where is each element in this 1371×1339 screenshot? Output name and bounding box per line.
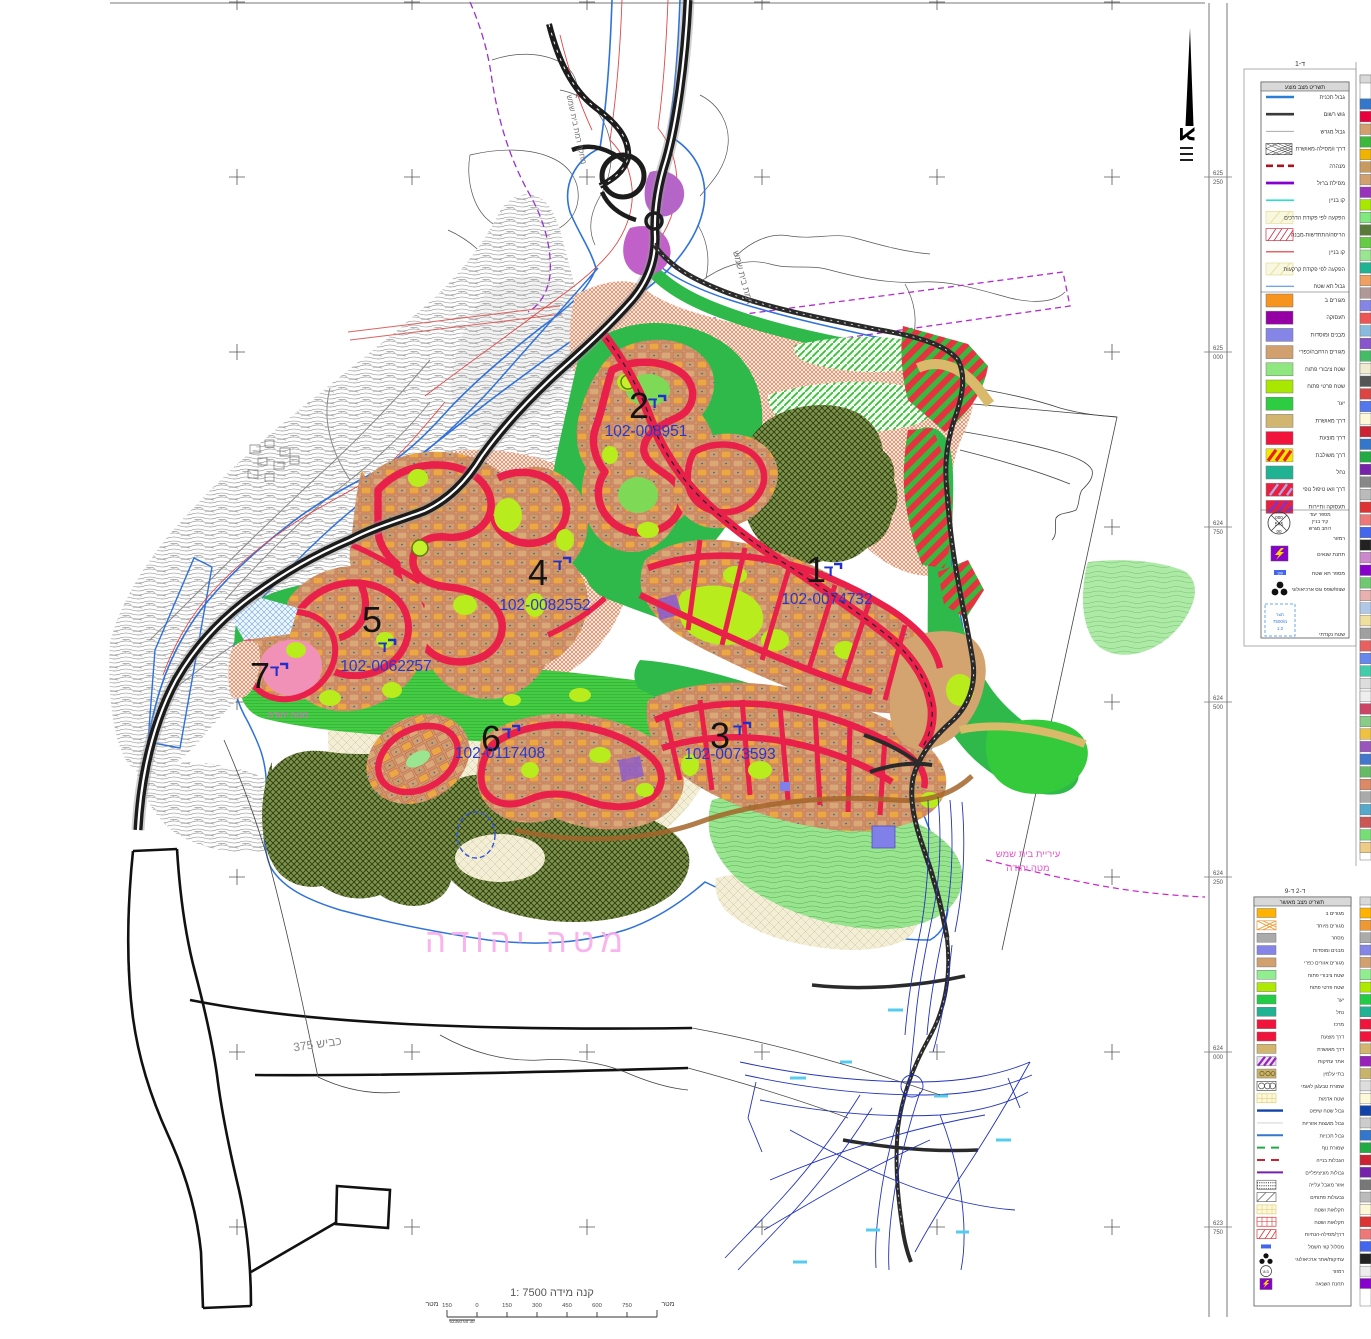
svg-text:מספר יעוד: מספר יעוד xyxy=(1309,513,1330,518)
svg-text:מספר תא שטח: מספר תא שטח xyxy=(1312,571,1346,577)
svg-text:150: 150 xyxy=(502,1303,512,1309)
svg-text:4: 4 xyxy=(528,552,548,593)
svg-text:קו בניין: קו בניין xyxy=(1329,198,1345,204)
svg-text:גבול מועצות אזוריות: גבול מועצות אזוריות xyxy=(1302,1120,1344,1127)
svg-text:קו בניין: קו בניין xyxy=(1329,250,1345,256)
svg-text:דרך מאושרת: דרך מאושרת xyxy=(1317,1047,1344,1053)
svg-text:מטה יהודה: מטה יהודה xyxy=(1006,863,1049,874)
svg-text:תחנת שנאים: תחנת שנאים xyxy=(1317,552,1345,558)
svg-text:דרך מאושרת: דרך מאושרת xyxy=(1315,418,1345,424)
svg-text:102-0074732: 102-0074732 xyxy=(781,591,872,608)
svg-text:750: 750 xyxy=(622,1303,632,1309)
svg-text:מגורים ב: מגורים ב xyxy=(1325,298,1346,304)
svg-text:יער: יער xyxy=(1337,401,1345,407)
svg-text:450: 450 xyxy=(562,1303,572,1309)
svg-text:בתי עלמין: בתי עלמין xyxy=(1323,1071,1344,1078)
svg-text:תשריט מצב מאושר: תשריט מצב מאושר xyxy=(1280,900,1325,906)
svg-text:ד-1: ד-1 xyxy=(1295,61,1305,68)
svg-text:מגורים מיוחד: מגורים מיוחד xyxy=(1316,923,1344,929)
svg-text:000: 000 xyxy=(1213,355,1224,361)
svg-text:שטח ציבורי פתוח: שטח ציבורי פתוח xyxy=(1305,367,1345,373)
svg-text:דרך מוצעת: דרך מוצעת xyxy=(1320,436,1346,442)
svg-text:7: 7 xyxy=(250,655,270,696)
svg-text:תחנת השנאה: תחנת השנאה xyxy=(1315,1282,1344,1288)
svg-text:מגורים הרחבה/כפרי: מגורים הרחבה/כפרי xyxy=(1299,350,1345,356)
svg-text:קיר בניין: קיר בניין xyxy=(1312,520,1329,525)
svg-text:2: 2 xyxy=(629,385,649,426)
svg-text:ד: ד xyxy=(553,557,562,574)
svg-text:250: 250 xyxy=(1213,180,1224,186)
svg-text:חקלאות ושטח: חקלאות ושטח xyxy=(1314,1219,1344,1226)
svg-text:625: 625 xyxy=(1213,171,1224,177)
svg-text:102-0117408: 102-0117408 xyxy=(455,745,545,762)
svg-text:שצפ/שפפ וגס ארכיאולוגי: שצפ/שפפ וגס ארכיאולוגי xyxy=(1292,586,1346,593)
svg-text:מרכז: מרכז xyxy=(1334,1022,1345,1028)
svg-text:הגבלות בנייה: הגבלות בנייה xyxy=(1316,1157,1344,1164)
svg-text:נחל: נחל xyxy=(1336,469,1345,476)
svg-text:תעסוקה: תעסוקה xyxy=(1326,315,1345,321)
svg-text:חקלאות ושטח: חקלאות ושטח xyxy=(1314,1206,1344,1213)
svg-text:מגורים אזורים כפרי: מגורים אזורים כפרי xyxy=(1304,960,1344,966)
svg-text:625: 625 xyxy=(1213,346,1224,352)
svg-text:102-008951: 102-008951 xyxy=(605,423,688,440)
svg-text:102-0082552: 102-0082552 xyxy=(499,597,590,614)
svg-text:הפקעה לפי פקודת הדרכים: הפקעה לפי פקודת הדרכים xyxy=(1284,214,1345,221)
svg-text:ד: ד xyxy=(270,663,279,680)
svg-text:מטה יהודה: מטה יהודה xyxy=(268,710,309,720)
svg-text:מסילת ברזל: מסילת ברזל xyxy=(1317,180,1345,187)
svg-text:102-0062257: 102-0062257 xyxy=(340,658,431,675)
svg-text:מטר: מטר xyxy=(661,1301,674,1308)
svg-text:623: 623 xyxy=(1213,1221,1224,1227)
svg-text:דרך ו/מסילה-מאושרת: דרך ו/מסילה-מאושרת xyxy=(1296,146,1345,153)
svg-text:102-0073593: 102-0073593 xyxy=(684,746,775,763)
svg-text:250: 250 xyxy=(1213,880,1224,886)
svg-text:624: 624 xyxy=(1213,871,1224,877)
svg-text:750: 750 xyxy=(1213,1230,1224,1236)
svg-text:600: 600 xyxy=(592,1303,602,1309)
svg-text:צ: צ xyxy=(1174,127,1201,142)
svg-text:גבול תכנית: גבול תכנית xyxy=(1320,94,1346,101)
svg-text:אזור מוגבל עלייה: אזור מוגבל עלייה xyxy=(1309,1182,1345,1189)
svg-text:624: 624 xyxy=(1213,696,1224,702)
svg-text:000: 000 xyxy=(1275,515,1283,520)
svg-text:עתיקות/אתר ארכיאולוגי: עתיקות/אתר ארכיאולוגי xyxy=(1295,1256,1344,1263)
svg-text:מ/7500: מ/7500 xyxy=(1273,619,1287,624)
svg-text:מנהרה: מנהרה xyxy=(1329,164,1345,170)
svg-text:ד: ד xyxy=(648,395,657,412)
svg-text:מגורים ב: מגורים ב xyxy=(1326,911,1345,917)
svg-text:000: 000 xyxy=(1213,1055,1224,1061)
svg-text:תשריט מצב מוצע: תשריט מצב מוצע xyxy=(1285,85,1325,91)
svg-text:גבולות מוניציפליים: גבולות מוניציפליים xyxy=(1305,1169,1344,1176)
svg-text:מסלול קווי חשמל: מסלול קווי חשמל xyxy=(1308,1243,1344,1250)
svg-text:ד: ד xyxy=(502,725,511,742)
svg-text:רמזור: רמזור xyxy=(1333,536,1345,542)
svg-text:100: 100 xyxy=(1277,572,1283,576)
svg-text:624: 624 xyxy=(1213,521,1224,527)
svg-text:גבול תא שטח: גבול תא שטח xyxy=(1314,283,1346,290)
svg-text:300: 300 xyxy=(532,1303,542,1309)
svg-text:הריסה/התחדשות-מבנה: הריסה/התחדשות-מבנה xyxy=(1291,233,1346,239)
svg-text:שטח אדמות: שטח אדמות xyxy=(1318,1096,1344,1102)
svg-text:150: 150 xyxy=(442,1303,452,1309)
svg-text:מבנים ומוסדות: מבנים ומוסדות xyxy=(1313,948,1345,954)
svg-text:מסחר: מסחר xyxy=(1331,936,1344,942)
svg-text:ד-2 ד-9: ד-2 ד-9 xyxy=(1285,888,1306,895)
svg-text:ד: ד xyxy=(824,563,833,580)
svg-text:דרך מוצעת: דרך מוצעת xyxy=(1321,1035,1344,1041)
svg-text:גבול מגרש: גבול מגרש xyxy=(1320,128,1345,135)
svg-text:0: 0 xyxy=(475,1303,478,1309)
svg-text:שטח נקודתי: שטח נקודתי xyxy=(1319,632,1345,638)
svg-text:שמורת טבע/גן לאומי: שמורת טבע/גן לאומי xyxy=(1301,1083,1344,1090)
svg-text:מבנים ומוסדות: מבנים ומוסדות xyxy=(1311,332,1346,338)
svg-text:עיריית בית שמש: עיריית בית שמש xyxy=(996,849,1061,860)
svg-text:5: 5 xyxy=(362,599,382,640)
svg-text:1:2: 1:2 xyxy=(1277,626,1284,631)
svg-text:62350 60 30: 62350 60 30 xyxy=(449,1319,475,1324)
svg-text:רמזור: רמזור xyxy=(1332,1269,1344,1275)
svg-text:750: 750 xyxy=(1213,530,1224,536)
svg-text:דרך/מסילה-הנחיות: דרך/מסילה-הנחיות xyxy=(1305,1231,1344,1238)
svg-text:שטח פרטי פתוח: שטח פרטי פתוח xyxy=(1307,384,1345,390)
svg-text:נחל: נחל xyxy=(1336,1009,1344,1016)
svg-text:5×5: 5×5 xyxy=(1275,522,1284,528)
svg-text:624: 624 xyxy=(1213,1046,1224,1052)
svg-text:שטח פרטי פתוח: שטח פרטי פתוח xyxy=(1310,985,1345,991)
svg-text:יער: יער xyxy=(1337,997,1344,1003)
svg-text:רוחב מגרש: רוחב מגרש xyxy=(1309,527,1332,532)
svg-text:מטה יהודה: מטה יהודה xyxy=(425,922,629,959)
svg-text:הפקעה לפי פקודת קרקעות: הפקעה לפי פקודת קרקעות xyxy=(1283,266,1345,273)
svg-text:ד: ד xyxy=(733,722,742,739)
svg-text:אתר עתיקות: אתר עתיקות xyxy=(1318,1059,1345,1065)
svg-text:גבול תכניות: גבול תכניות xyxy=(1319,1132,1344,1139)
svg-text:גבעולות פתוחים: גבעולות פתוחים xyxy=(1310,1194,1344,1201)
svg-text:תעסוקה ותיירות: תעסוקה ותיירות xyxy=(1309,504,1346,510)
svg-text:8:3: 8:3 xyxy=(1263,1269,1269,1274)
svg-text:גוש רשום: גוש רשום xyxy=(1324,112,1346,118)
svg-text:גבול שטח שיפוט: גבול שטח שיפוט xyxy=(1310,1108,1345,1115)
svg-text:תצר: תצר xyxy=(1276,612,1284,617)
svg-text:קנה מידה 7500 :1: קנה מידה 7500 :1 xyxy=(510,1287,594,1299)
svg-text:מטר: מטר xyxy=(425,1301,438,1308)
svg-text:דרך ו/או טיפול נופי: דרך ו/או טיפול נופי xyxy=(1303,486,1345,493)
svg-text:00: 00 xyxy=(1276,529,1282,534)
svg-text:שטח ציבורי פתוח: שטח ציבורי פתוח xyxy=(1308,973,1345,979)
svg-text:דרך משולבת: דרך משולבת xyxy=(1316,452,1345,459)
svg-text:ד: ד xyxy=(378,639,387,656)
svg-text:500: 500 xyxy=(1213,705,1224,711)
svg-text:שמורת נוף: שמורת נוף xyxy=(1322,1146,1344,1152)
